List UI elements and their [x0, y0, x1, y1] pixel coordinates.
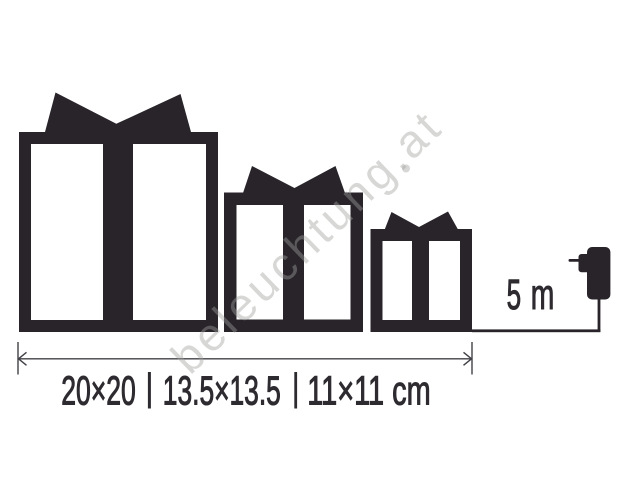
- svg-text:11×11 cm: 11×11 cm: [307, 369, 430, 414]
- svg-text:m: m: [531, 270, 555, 318]
- svg-text:13.5×13.5: 13.5×13.5: [163, 369, 281, 414]
- svg-text:5: 5: [507, 270, 522, 318]
- svg-text:20×20: 20×20: [61, 369, 136, 414]
